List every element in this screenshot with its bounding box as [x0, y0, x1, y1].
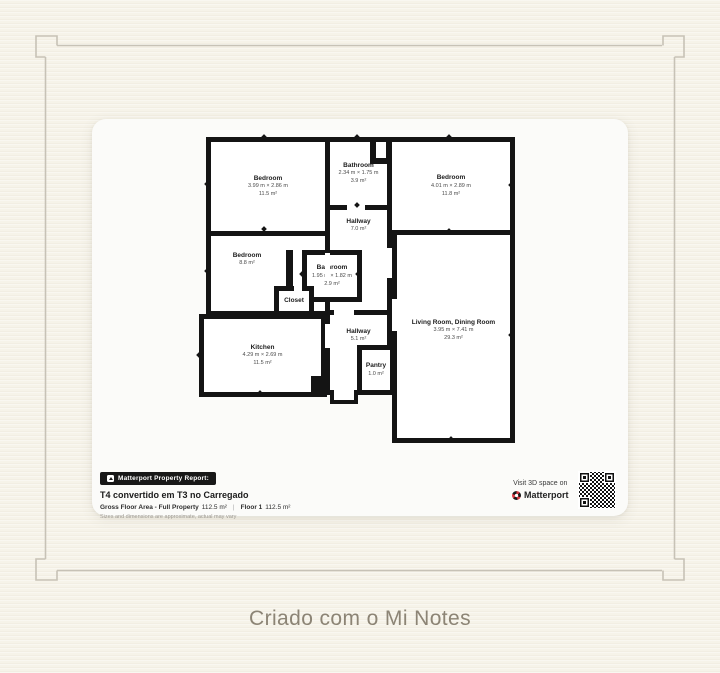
- room-name: Bedroom: [254, 175, 283, 182]
- room-bedroom-top-left: Bedroom 3.99 m × 2.86 m 11.5 m²: [206, 137, 330, 236]
- floor-plan: Bedroom 3.99 m × 2.86 m 11.5 m² Bathroom…: [0, 0, 720, 673]
- room-area: 29.3 m²: [444, 335, 463, 342]
- room-label: Kitchen 4.29 m × 2.69 m 11.5 m²: [204, 319, 321, 392]
- room-label: Living Room, Dining Room 3.95 m × 7.41 m…: [397, 235, 510, 438]
- room-area: 3.9 m²: [351, 178, 367, 185]
- room-area: 5.1 m²: [351, 336, 367, 343]
- matterport-brand-row: Matterport: [512, 490, 569, 500]
- door-opening: [334, 390, 354, 396]
- room-area: 11.5 m²: [259, 191, 277, 198]
- room-area: 2.9 m²: [324, 281, 340, 288]
- room-dims: 1.95 m × 1.82 m: [312, 273, 352, 280]
- gross-floor-area-label: Gross Floor Area - Full Property: [100, 504, 199, 511]
- visit-3d-block: Visit 3D space on Matterport: [512, 471, 616, 509]
- door-opening: [325, 253, 330, 279]
- room-label: Bedroom 3.99 m × 2.86 m 11.5 m²: [211, 142, 325, 231]
- floor-label: Floor 1: [241, 504, 263, 511]
- report-badge: Matterport Property Report:: [100, 472, 216, 485]
- room-name: Hallway: [346, 218, 370, 225]
- door-opening: [325, 324, 330, 348]
- matterport-logo-icon: [512, 491, 521, 500]
- door-opening: [392, 299, 397, 331]
- matterport-icon: [107, 475, 114, 482]
- wall-step: [311, 376, 327, 397]
- note-canvas: Bedroom 3.99 m × 2.86 m 11.5 m² Bathroom…: [0, 0, 720, 673]
- room-living-dining: Living Room, Dining Room 3.95 m × 7.41 m…: [392, 230, 515, 443]
- room-area: 8.8 m²: [239, 260, 255, 267]
- wall-alcove: [286, 250, 293, 291]
- room-name: Living Room, Dining Room: [412, 319, 495, 326]
- room-dims: 4.29 m × 2.69 m: [243, 352, 283, 359]
- room-name: Bathroom: [317, 264, 348, 271]
- qr-code: [578, 471, 616, 509]
- report-metrics: Gross Floor Area - Full Property 112.5 m…: [100, 504, 420, 511]
- visit-line: Visit 3D space on: [513, 480, 567, 487]
- wall-notch: [376, 142, 386, 158]
- gross-floor-area-value: 112.5 m²: [202, 504, 227, 511]
- room-name: Pantry: [366, 362, 386, 369]
- report-badge-label: Matterport Property Report:: [118, 475, 209, 482]
- room-kitchen: Kitchen 4.29 m × 2.69 m 11.5 m²: [199, 314, 326, 397]
- room-area: 11.8 m²: [442, 191, 460, 198]
- room-area: 7.0 m²: [351, 226, 367, 233]
- room-bedroom-top-right: Bedroom 4.01 m × 2.89 m 11.8 m²: [387, 137, 515, 235]
- room-dims: 4.01 m × 2.89 m: [431, 183, 471, 190]
- door-opening: [334, 310, 354, 315]
- metrics-separator: |: [233, 504, 235, 511]
- report-disclaimer: Sizes and dimensions are approximate, ac…: [100, 514, 420, 520]
- room-name: Kitchen: [251, 344, 275, 351]
- room-label: Closet: [279, 291, 309, 311]
- door-opening: [294, 286, 302, 291]
- room-area: 11.5 m²: [253, 360, 271, 367]
- room-dims: 2.34 m × 1.75 m: [339, 170, 379, 177]
- room-label: Bedroom 4.01 m × 2.89 m 11.8 m²: [392, 142, 510, 230]
- room-name: Bedroom: [437, 174, 466, 181]
- visit-text: Visit 3D space on Matterport: [512, 480, 569, 500]
- room-pantry: Pantry 1.0 m²: [357, 345, 395, 395]
- room-dims: 3.99 m × 2.86 m: [248, 183, 288, 190]
- room-name: Closet: [284, 297, 304, 304]
- room-name: Bedroom: [233, 252, 262, 259]
- door-opening: [387, 248, 392, 278]
- room-name: Hallway: [346, 328, 370, 335]
- room-dims: 3.95 m × 7.41 m: [434, 327, 474, 334]
- floor-value: 112.5 m²: [265, 504, 290, 511]
- report-title: T4 convertido em T3 no Carregado: [100, 490, 420, 500]
- matterport-brand-label: Matterport: [524, 490, 569, 500]
- property-report: Matterport Property Report: T4 convertid…: [100, 467, 420, 520]
- qr-code-image: [578, 471, 616, 509]
- room-label: Bathroom 1.95 m × 1.82 m 2.9 m²: [307, 255, 357, 297]
- room-area: 1.0 m²: [368, 371, 384, 378]
- room-label: Pantry 1.0 m²: [362, 350, 390, 390]
